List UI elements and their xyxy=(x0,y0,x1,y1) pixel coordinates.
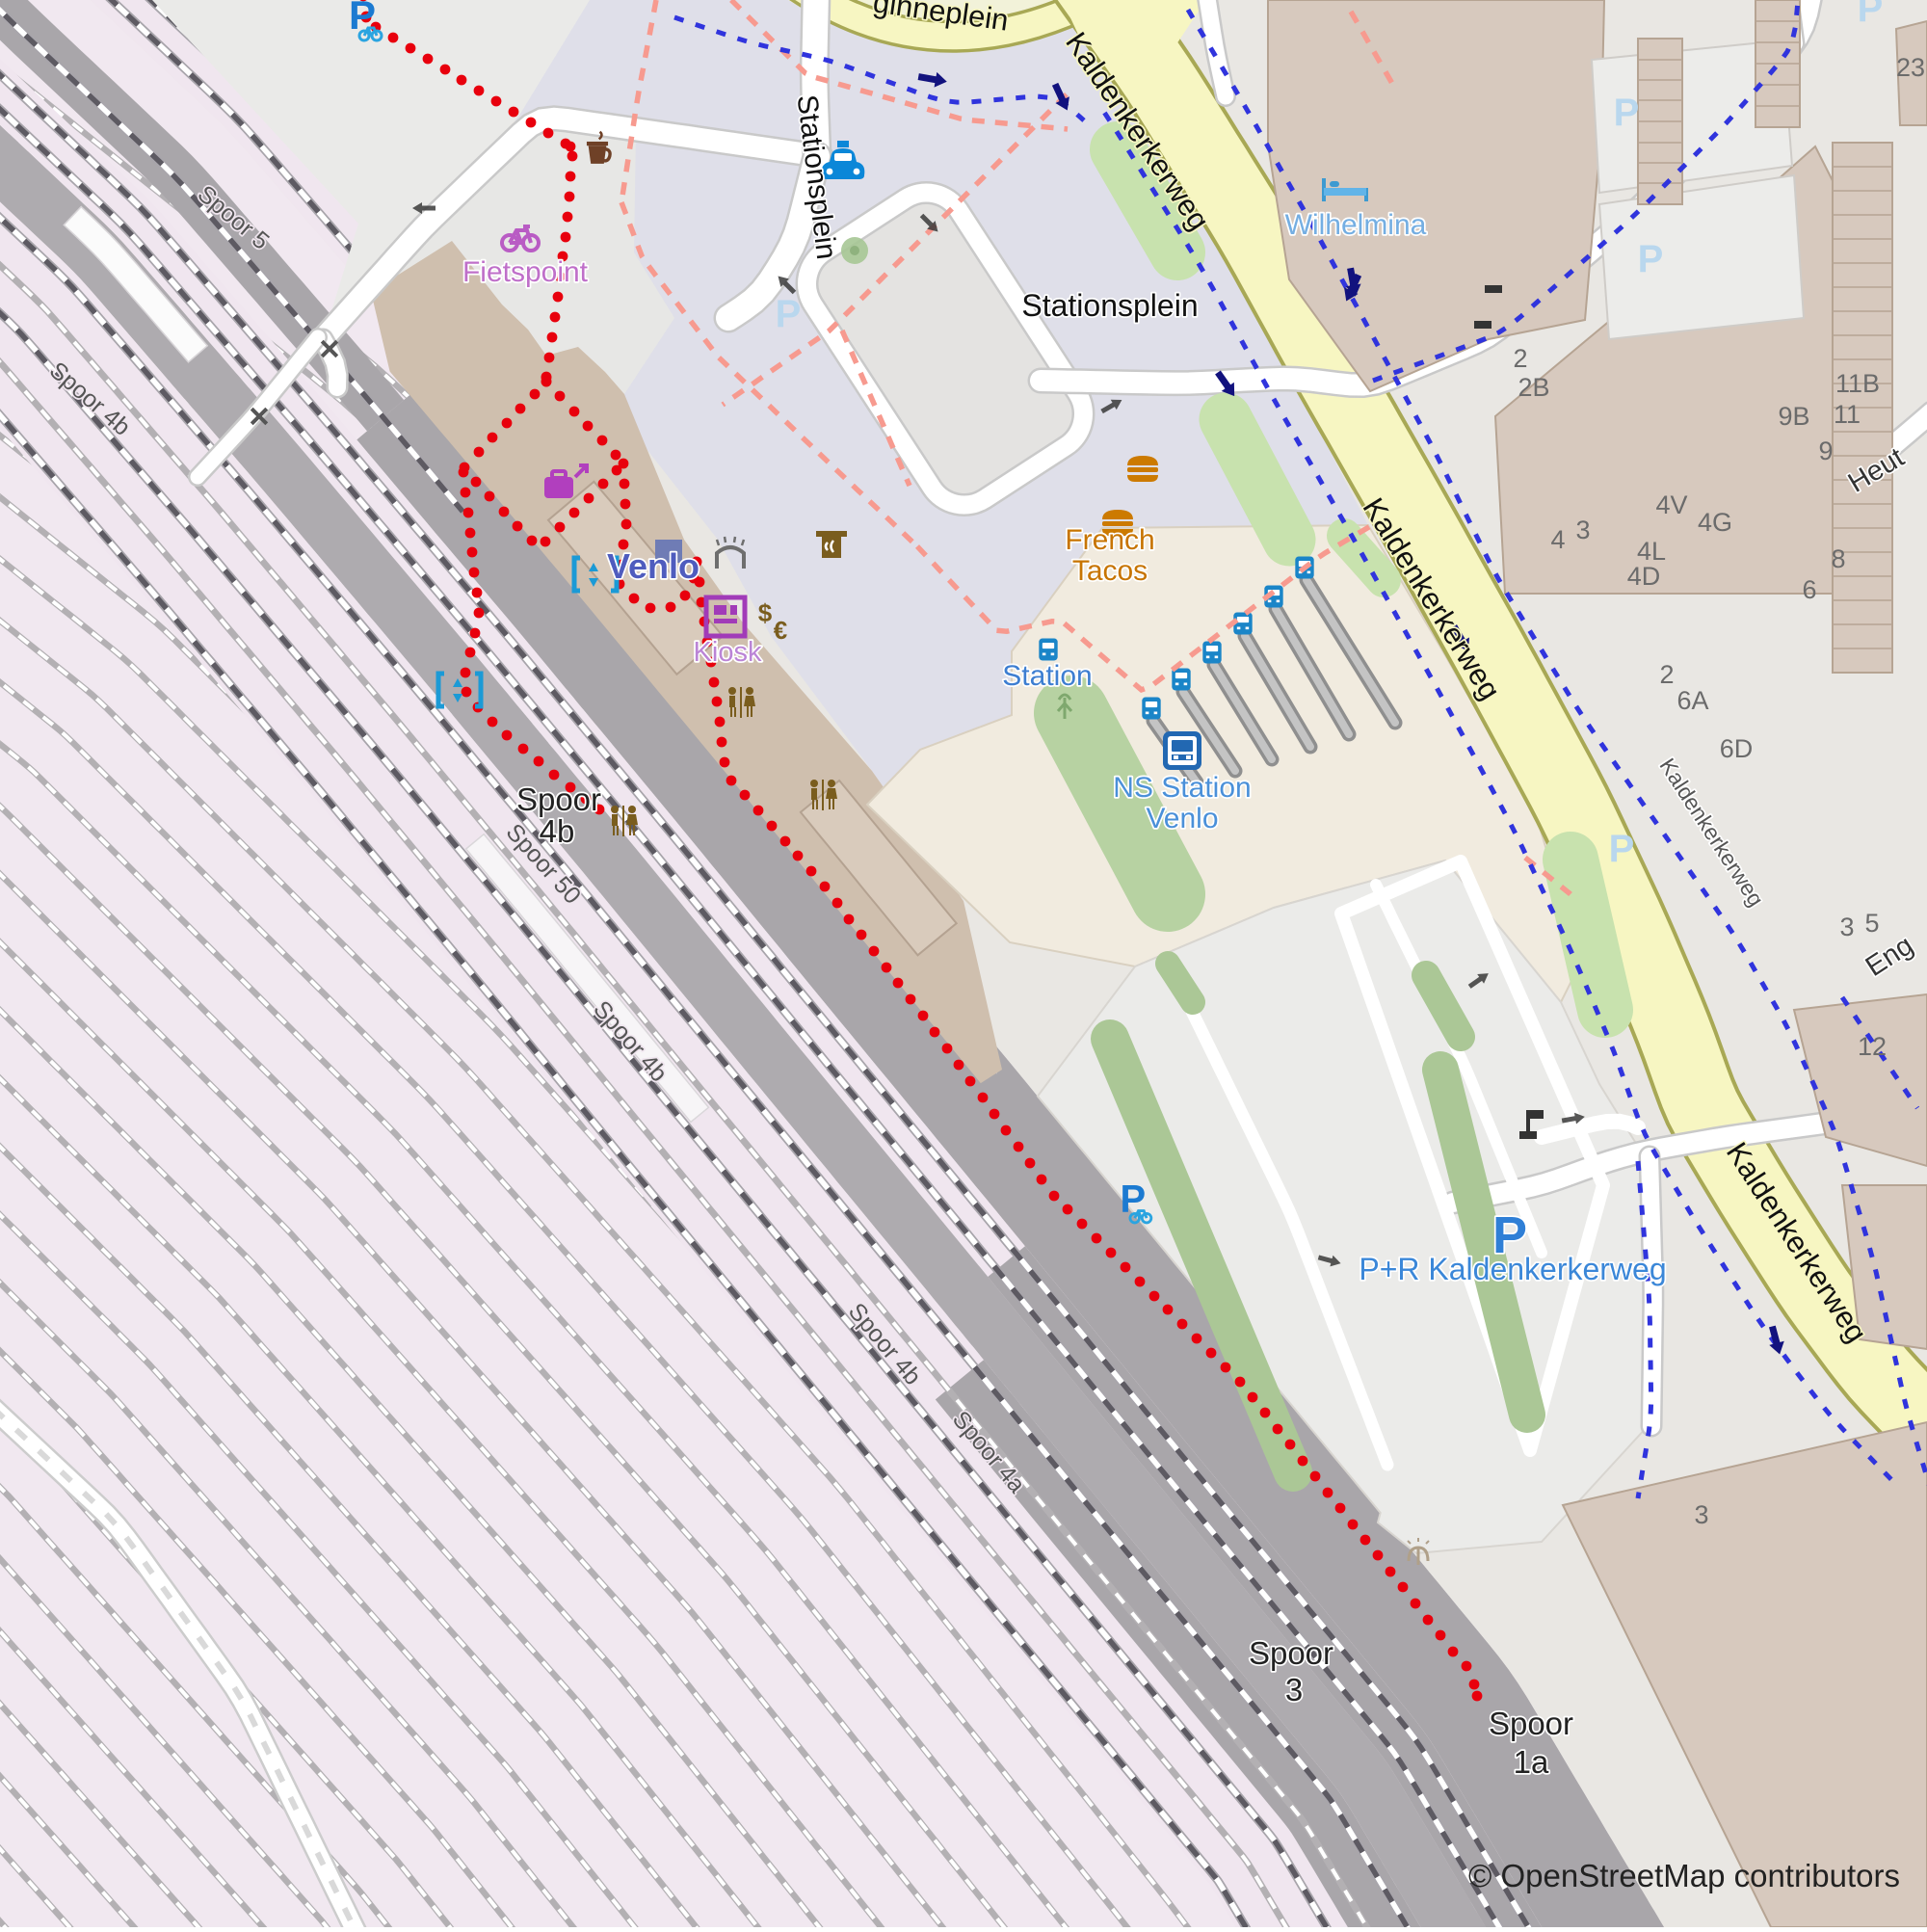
svg-text:6D: 6D xyxy=(1720,734,1754,763)
svg-text:6: 6 xyxy=(1802,575,1816,604)
svg-text:5: 5 xyxy=(1864,909,1879,938)
svg-text:Spoor: Spoor xyxy=(1489,1706,1573,1741)
svg-text:Venlo: Venlo xyxy=(607,546,700,586)
svg-text:3: 3 xyxy=(1575,516,1590,544)
svg-text:9: 9 xyxy=(1818,437,1833,465)
svg-text:2: 2 xyxy=(1513,344,1527,373)
svg-text:P: P xyxy=(776,293,802,335)
svg-text:3: 3 xyxy=(1694,1500,1708,1529)
svg-text:€: € xyxy=(774,616,787,645)
svg-text:11: 11 xyxy=(1834,400,1861,429)
svg-text:4G: 4G xyxy=(1698,508,1732,537)
svg-text:11B: 11B xyxy=(1835,369,1880,398)
svg-text:3: 3 xyxy=(1285,1672,1303,1707)
svg-text:Spoor: Spoor xyxy=(1249,1635,1333,1671)
svg-text:2: 2 xyxy=(1659,660,1674,689)
svg-text:23: 23 xyxy=(1896,53,1925,82)
svg-text:4D: 4D xyxy=(1627,562,1661,591)
svg-text:3: 3 xyxy=(1839,913,1854,941)
svg-text:$: $ xyxy=(758,598,773,627)
svg-text:Spoor: Spoor xyxy=(516,781,601,817)
svg-text:4V: 4V xyxy=(1655,490,1687,519)
svg-text:1a: 1a xyxy=(1514,1744,1549,1780)
svg-text:P: P xyxy=(1609,828,1635,870)
svg-text:P: P xyxy=(1492,1206,1527,1264)
svg-text:French: French xyxy=(1065,524,1154,556)
svg-text:© OpenStreetMap contributors: © OpenStreetMap contributors xyxy=(1468,1858,1900,1893)
svg-text:2B: 2B xyxy=(1518,373,1549,402)
svg-text:Station: Station xyxy=(1002,660,1092,692)
svg-text:P: P xyxy=(1614,92,1640,134)
svg-text:8: 8 xyxy=(1831,544,1845,573)
svg-text:P: P xyxy=(1858,0,1884,30)
svg-text:Tacos: Tacos xyxy=(1072,555,1148,587)
svg-text:4: 4 xyxy=(1550,525,1565,554)
svg-text:Fietspoint: Fietspoint xyxy=(462,256,589,288)
svg-text:Stationsplein: Stationsplein xyxy=(1021,288,1198,323)
svg-text:Venlo: Venlo xyxy=(1146,803,1218,834)
svg-text:9B: 9B xyxy=(1778,402,1809,431)
svg-text:12: 12 xyxy=(1858,1032,1887,1061)
svg-text:6A: 6A xyxy=(1676,686,1708,715)
svg-text:Kiosk: Kiosk xyxy=(694,637,762,668)
svg-text:NS Station: NS Station xyxy=(1113,772,1251,804)
svg-text:4b: 4b xyxy=(540,813,575,849)
svg-text:P: P xyxy=(1638,238,1664,280)
svg-text:Wilhelmina: Wilhelmina xyxy=(1285,209,1427,241)
